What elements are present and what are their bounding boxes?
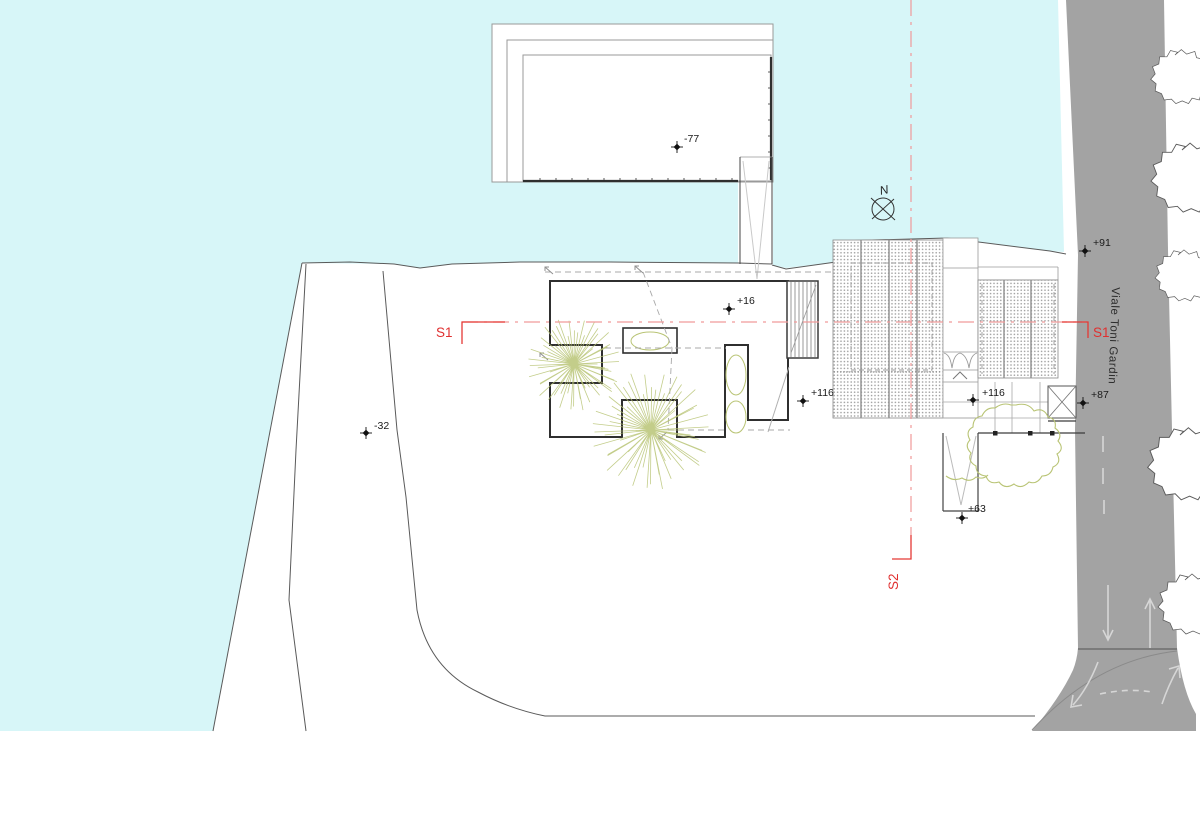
deck-column [1028, 431, 1033, 436]
survey-point-icon [956, 512, 968, 524]
upper-building-inner [523, 55, 771, 181]
slot-shrub-south [726, 401, 746, 433]
pergola-east-bridge [978, 267, 1058, 280]
elevation-label: -32 [374, 420, 389, 432]
walk-strip-deck [943, 238, 978, 418]
s2-label: S2 [886, 573, 901, 590]
elevation-label: -77 [684, 133, 699, 145]
pergola-east-trellis [978, 280, 1058, 378]
s1-label-east: S1 [1093, 325, 1110, 340]
exterior-stair [787, 281, 818, 358]
site-plan-canvas: Viale Toni Gardin S1 S1 S2 N -77 +16 -32… [0, 0, 1200, 836]
s2-bracket [892, 535, 911, 559]
elevation-label: +91 [1093, 237, 1111, 249]
elevation-label: +116 [811, 387, 834, 399]
elevation-label: +63 [968, 503, 986, 515]
south-ramp-slope [946, 436, 976, 505]
braced-canopy [1048, 386, 1076, 418]
elevation-label: +16 [737, 295, 755, 307]
elevation-label: +116 [982, 387, 1005, 399]
pergola-west-trellis [833, 240, 943, 418]
survey-point-icon [360, 427, 372, 439]
deck-column [1050, 431, 1055, 436]
elevation-label: +87 [1091, 389, 1109, 401]
survey-point-icon [797, 395, 809, 407]
s1-label-west: S1 [436, 325, 453, 340]
slot-shrub-north [726, 355, 746, 395]
shoreline-west [302, 262, 738, 268]
walk-strip [943, 238, 978, 418]
deck-column [993, 431, 998, 436]
pergola-west [833, 240, 943, 418]
upper-building [492, 24, 773, 182]
parcel-line-inner [289, 264, 306, 731]
south-ramp [943, 433, 978, 511]
